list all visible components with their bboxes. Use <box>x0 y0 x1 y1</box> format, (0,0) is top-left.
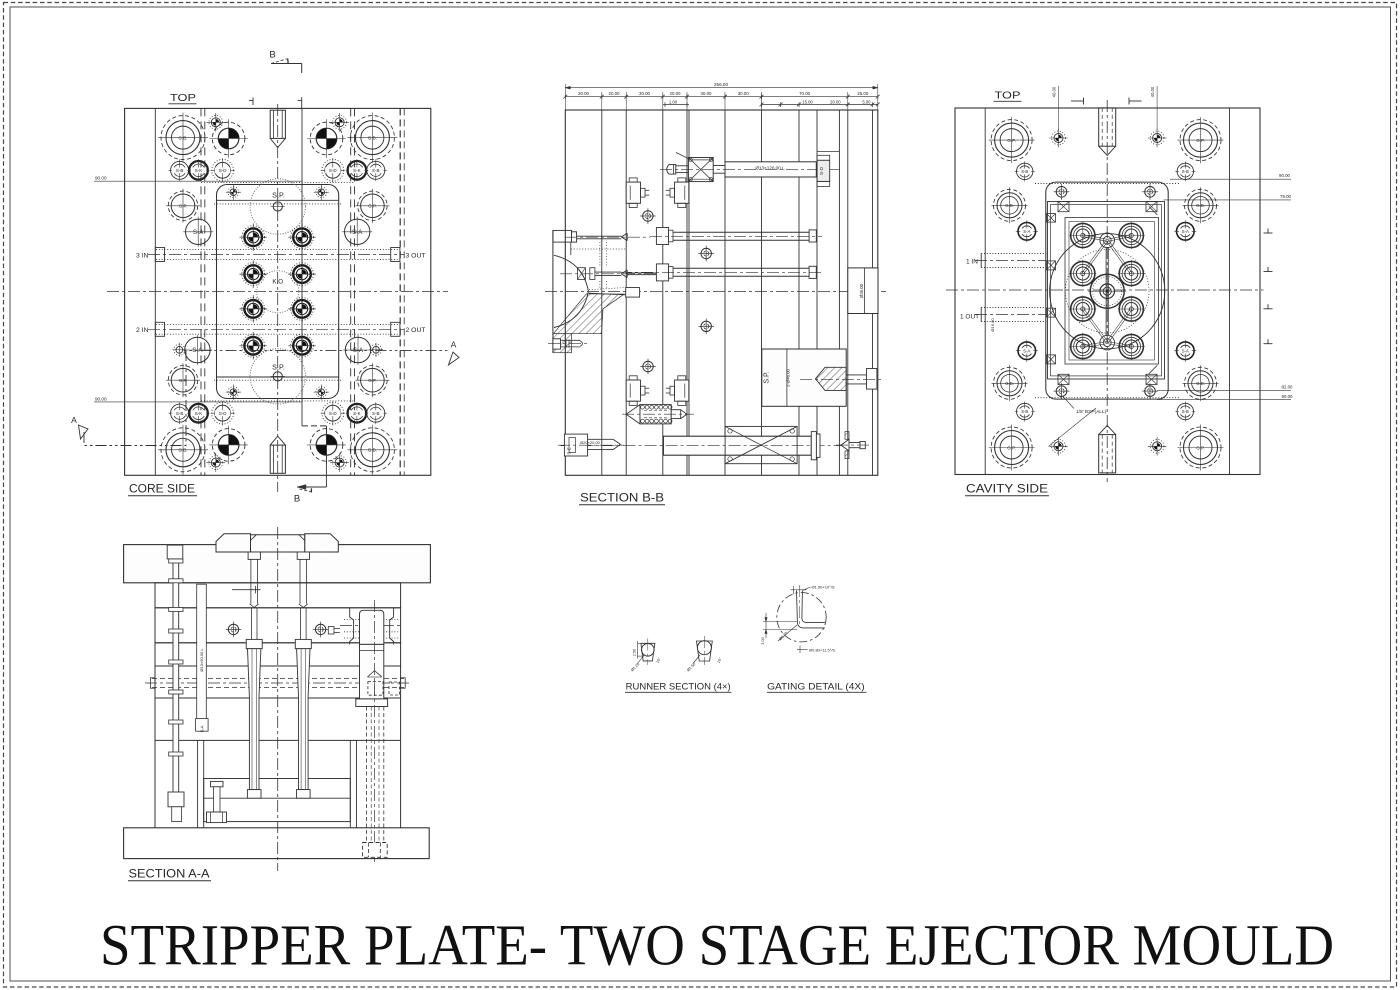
svg-text:G.B.: G.B. <box>1196 203 1205 208</box>
svg-text:G.P.: G.P. <box>1007 138 1016 143</box>
svg-text:G.P.: G.P. <box>179 204 188 209</box>
svg-text:25.00: 25.00 <box>857 91 869 96</box>
svg-text:75.00: 75.00 <box>1280 194 1292 199</box>
svg-text:Ø13×90.00 L: Ø13×90.00 L <box>199 648 204 672</box>
svg-text:256.00: 256.00 <box>714 82 728 87</box>
svg-text:S-A: S-A <box>1182 229 1189 234</box>
svg-text:S-A: S-A <box>1023 229 1030 234</box>
svg-text:B: B <box>269 50 275 61</box>
svg-text:82.00: 82.00 <box>1282 385 1294 390</box>
svg-text:S.P.: S.P. <box>272 191 285 200</box>
svg-text:CAVITY SIDE: CAVITY SIDE <box>966 482 1048 496</box>
svg-text:1.00: 1.00 <box>669 100 678 105</box>
svg-text:TOP: TOP <box>995 90 1021 102</box>
svg-text:S-B: S-B <box>1021 169 1028 174</box>
svg-text:S-B: S-B <box>176 411 184 416</box>
svg-text:S-B: S-B <box>372 411 380 416</box>
svg-text:S-E: S-E <box>567 447 572 454</box>
svg-text:G.B.: G.B. <box>1005 381 1014 386</box>
svg-text:S-D: S-D <box>219 168 228 173</box>
svg-text:3.00: 3.00 <box>761 637 765 644</box>
svg-text:S-D: S-D <box>219 411 228 416</box>
svg-text:3 OUT: 3 OUT <box>406 252 426 259</box>
svg-text:Ø35.00: Ø35.00 <box>859 283 864 298</box>
svg-text:A: A <box>71 415 77 425</box>
svg-text:Ø13×120.00 L: Ø13×120.00 L <box>755 166 785 171</box>
svg-text:20.00: 20.00 <box>670 91 682 96</box>
svg-text:70.00: 70.00 <box>799 91 811 96</box>
svg-text:30.00: 30.00 <box>639 91 651 96</box>
svg-text:CORE SIDE: CORE SIDE <box>129 482 195 496</box>
svg-text:A: A <box>451 340 457 350</box>
svg-text:S-K: S-K <box>353 168 361 173</box>
svg-text:S-A: S-A <box>352 229 363 236</box>
svg-text:30.00: 30.00 <box>578 91 590 96</box>
svg-text:Ø20×20.00: Ø20×20.00 <box>580 440 601 445</box>
svg-text:G.P.: G.P. <box>1007 445 1016 450</box>
svg-text:STRIPPER PLATE- TWO STAGE EJEC: STRIPPER PLATE- TWO STAGE EJECTOR MOULD <box>100 913 1334 978</box>
svg-text:S-A: S-A <box>1023 348 1030 353</box>
svg-text:90.00: 90.00 <box>95 176 107 181</box>
svg-text:S-B: S-B <box>372 168 380 173</box>
svg-text:G.P.: G.P. <box>1196 138 1205 143</box>
svg-text:1 OUT: 1 OUT <box>960 313 979 320</box>
svg-text:S-B: S-B <box>176 168 184 173</box>
svg-text:S-D: S-D <box>819 166 824 175</box>
svg-text:40.00: 40.00 <box>1150 86 1155 97</box>
svg-text:S-A: S-A <box>193 229 204 236</box>
svg-text:G.B.: G.B. <box>178 135 187 140</box>
svg-text:90.00: 90.00 <box>1279 173 1291 178</box>
svg-text:S-B: S-B <box>1182 169 1189 174</box>
svg-text:S-A: S-A <box>1182 348 1189 353</box>
svg-text:Ø16.00: Ø16.00 <box>990 318 995 332</box>
svg-text:Ø0.80+11.5°/S: Ø0.80+11.5°/S <box>809 648 835 653</box>
svg-text:S-A: S-A <box>199 725 204 732</box>
svg-text:15.00: 15.00 <box>802 100 813 105</box>
svg-text:S.P.: S.P. <box>764 371 771 383</box>
svg-text:SECTION A-A: SECTION A-A <box>129 867 210 881</box>
svg-text:S-D: S-D <box>329 411 338 416</box>
svg-text:90.00: 90.00 <box>95 396 107 401</box>
svg-text:30.00: 30.00 <box>738 91 750 96</box>
svg-text:S-K: S-K <box>195 168 203 173</box>
svg-text:5.00: 5.00 <box>862 100 871 105</box>
svg-text:1 IN: 1 IN <box>966 258 978 265</box>
svg-text:G.P.: G.P. <box>1196 445 1205 450</box>
svg-text:G.B.: G.B. <box>1005 203 1014 208</box>
svg-text:G.P.: G.P. <box>368 378 377 383</box>
svg-text:S-K: S-K <box>353 411 361 416</box>
svg-text:G.B.: G.B. <box>368 448 377 453</box>
svg-text:S-B: S-B <box>1182 409 1189 414</box>
svg-text:GATING DETAIL (4X): GATING DETAIL (4X) <box>767 682 865 692</box>
svg-text:RUNNER SECTION (4×): RUNNER SECTION (4×) <box>626 682 731 692</box>
svg-text:40.00: 40.00 <box>1052 86 1057 97</box>
svg-text:G.B.: G.B. <box>1196 381 1205 386</box>
svg-text:90.00: 90.00 <box>1282 394 1294 399</box>
svg-text:B: B <box>294 494 300 505</box>
svg-text:SECTION B-B: SECTION B-B <box>580 491 664 505</box>
svg-text:S-D: S-D <box>329 168 338 173</box>
svg-text:K.O: K.O <box>272 279 283 286</box>
svg-text:2.50: 2.50 <box>632 649 636 656</box>
svg-text:2 OUT: 2 OUT <box>406 327 426 334</box>
svg-text:Ø1.50+10°/S: Ø1.50+10°/S <box>812 584 835 589</box>
svg-text:TOP: TOP <box>170 92 196 104</box>
svg-text:G.B.: G.B. <box>178 448 187 453</box>
svg-text:S-B: S-B <box>1021 409 1028 414</box>
svg-text:S.P.: S.P. <box>272 363 285 372</box>
svg-text:3 IN: 3 IN <box>136 252 149 259</box>
svg-text:30.00: 30.00 <box>701 91 713 96</box>
svg-text:S-K: S-K <box>195 411 203 416</box>
svg-text:G.P.: G.P. <box>368 204 377 209</box>
svg-text:2 IN: 2 IN <box>136 327 149 334</box>
svg-text:2-Ø46.00: 2-Ø46.00 <box>786 368 791 387</box>
svg-text:20.00: 20.00 <box>830 100 841 105</box>
svg-text:G.B.: G.B. <box>368 135 377 140</box>
svg-text:20.00: 20.00 <box>609 91 621 96</box>
